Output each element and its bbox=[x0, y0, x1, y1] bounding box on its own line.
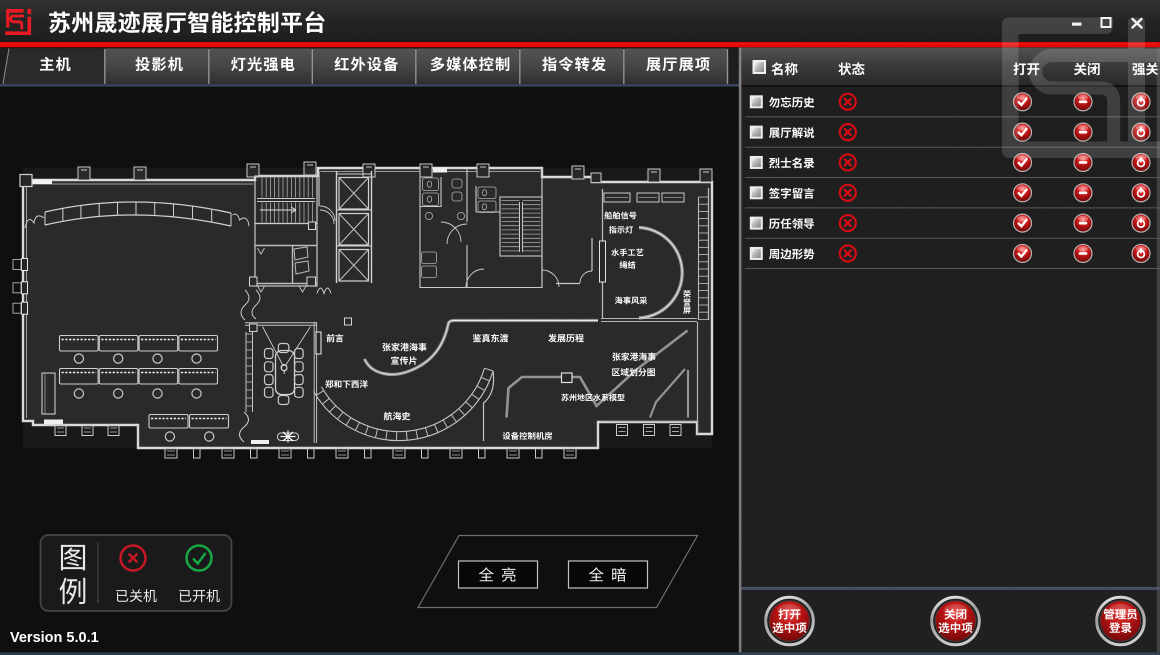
svg-text:Version 5.0.1: Version 5.0.1 bbox=[10, 630, 99, 646]
